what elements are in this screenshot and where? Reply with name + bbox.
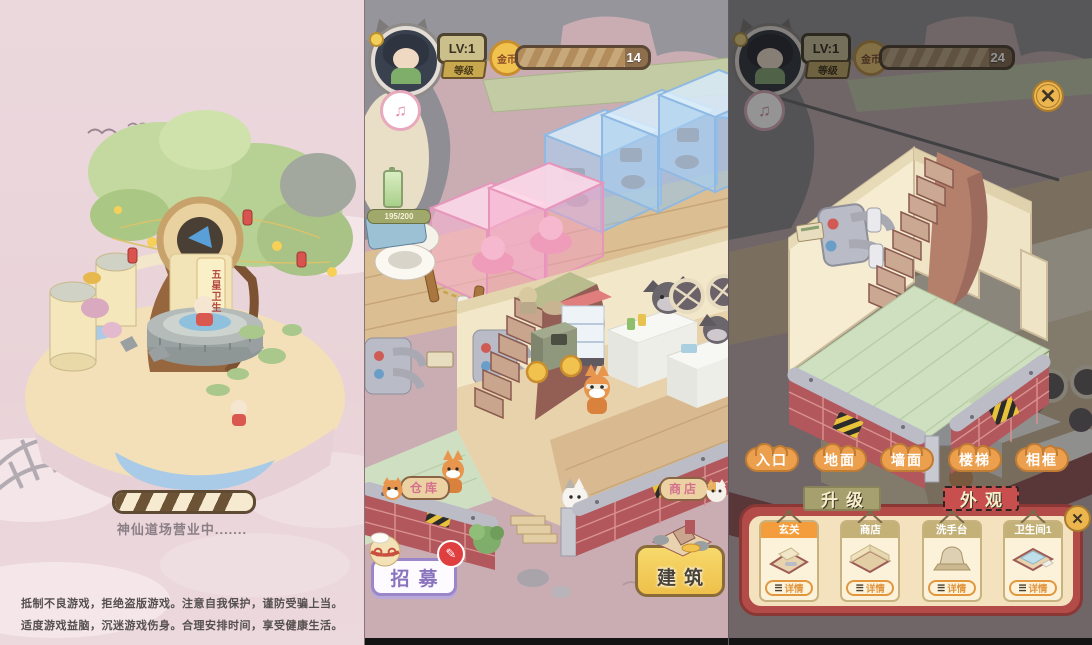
bottom-black-bar xyxy=(365,638,729,645)
detail-list-icon: ☰ xyxy=(774,584,782,593)
music-button[interactable]: ♫ xyxy=(380,90,421,131)
item-card-shop[interactable]: 商店 ☰ 详情 xyxy=(840,520,900,602)
avatar-body xyxy=(391,68,421,84)
hanger-string-icon xyxy=(855,509,885,523)
battery-icon xyxy=(383,170,403,208)
tab-appearance[interactable]: 外观 xyxy=(943,486,1019,511)
item-card-entrance[interactable]: 玄关 ☰ 详情 xyxy=(759,520,819,602)
hanger-string-icon xyxy=(774,509,804,523)
tab-entrance[interactable]: 入口 xyxy=(745,447,799,472)
detail-button-washstand[interactable]: ☰ 详情 xyxy=(928,580,976,596)
shop-label: 商店 xyxy=(659,477,709,501)
level-label: 等级 xyxy=(441,60,488,79)
loading-bar-fill xyxy=(115,493,239,511)
app-root: 五星卫生 神仙道场营业中....... 抵制不良游戏，拒绝盗版游戏。注意自我保护… xyxy=(0,0,1092,645)
item-card-row: 玄关 ☰ 详情 xyxy=(759,518,1063,602)
close-edit-button[interactable]: ✕ xyxy=(1032,80,1064,112)
detail-button-entrance[interactable]: ☰ 详情 xyxy=(765,580,813,596)
tab-frame[interactable]: 相框 xyxy=(1015,447,1069,472)
shop-sign[interactable]: 商店 xyxy=(659,477,729,501)
loading-screen: 五星卫生 神仙道场营业中....... 抵制不良游戏，拒绝盗版游戏。注意自我保护… xyxy=(0,0,364,645)
build-thumbnail xyxy=(643,512,719,558)
loading-caption: 神仙道场营业中....... xyxy=(0,519,364,538)
gold-amount: 14 xyxy=(627,48,641,67)
loading-island-art xyxy=(0,0,364,645)
game-screen: LV:1 等级 金币 14 ♫ 195/200 仓库 商店 xyxy=(364,0,729,645)
washstand-thumbnail xyxy=(928,540,976,576)
detail-list-icon: ☰ xyxy=(937,584,945,593)
item-card-title: 洗手台 xyxy=(924,522,980,538)
item-card-title: 卫生间1 xyxy=(1005,522,1061,538)
hanger-string-icon xyxy=(1018,509,1048,523)
bell-icon xyxy=(369,32,384,47)
detail-button-shop[interactable]: ☰ 详情 xyxy=(846,580,894,596)
bottom-black-bar xyxy=(729,638,1092,645)
warehouse-sign[interactable]: 仓库 xyxy=(379,476,450,500)
player-avatar[interactable] xyxy=(369,22,439,92)
item-card-title: 商店 xyxy=(842,522,898,538)
detail-list-icon: ☰ xyxy=(1018,584,1026,593)
tab-stairs[interactable]: 楼梯 xyxy=(948,447,1002,472)
shop-thumbnail xyxy=(846,540,894,576)
detail-button-toilet1[interactable]: ☰ 详情 xyxy=(1009,580,1057,596)
battery-value: 195/200 xyxy=(367,209,431,224)
toilet1-thumbnail xyxy=(1009,540,1057,576)
avatar-face xyxy=(393,48,419,70)
warehouse-label: 仓库 xyxy=(400,476,450,500)
health-disclaimer-line1: 抵制不良游戏，拒绝盗版游戏。注意自我保护，谨防受骗上当。 xyxy=(12,595,352,611)
cat-icon xyxy=(703,477,729,502)
hanger-string-icon xyxy=(937,509,967,523)
edit-screen: LV:1 等级 金币 24 ♫ xyxy=(728,0,1092,645)
item-card-toilet1[interactable]: 卫生间1 ☰ 详情 xyxy=(1003,520,1063,602)
gold-progress-fill xyxy=(518,48,625,67)
detail-list-icon: ☰ xyxy=(856,584,864,593)
item-card-title: 玄关 xyxy=(761,522,817,538)
entrance-thumbnail xyxy=(765,540,813,576)
tab-upgrade[interactable]: 升级 xyxy=(803,486,881,511)
health-disclaimer-line2: 适度游戏益脑，沉迷游戏伤身。合理安排时间，享受健康生活。 xyxy=(12,617,352,633)
appearance-panel: ✕ 玄关 ☰ xyxy=(739,504,1083,616)
close-panel-button[interactable]: ✕ xyxy=(1064,505,1091,532)
tab-wall[interactable]: 墙面 xyxy=(880,447,934,472)
recruit-character-icon xyxy=(365,530,405,568)
corgi-icon xyxy=(379,476,406,501)
item-card-washstand[interactable]: 洗手台 ☰ 详情 xyxy=(922,520,982,602)
music-note-icon: ♫ xyxy=(394,101,407,121)
loading-bar xyxy=(112,490,256,514)
recruit-alert-badge: ✎ xyxy=(437,540,465,568)
tab-floor[interactable]: 地面 xyxy=(813,447,867,472)
appearance-panel-inner: 玄关 ☰ 详情 xyxy=(749,516,1073,606)
gold-progress-bar: 14 xyxy=(515,45,651,70)
tower-sign: 五星卫生 xyxy=(203,262,225,320)
